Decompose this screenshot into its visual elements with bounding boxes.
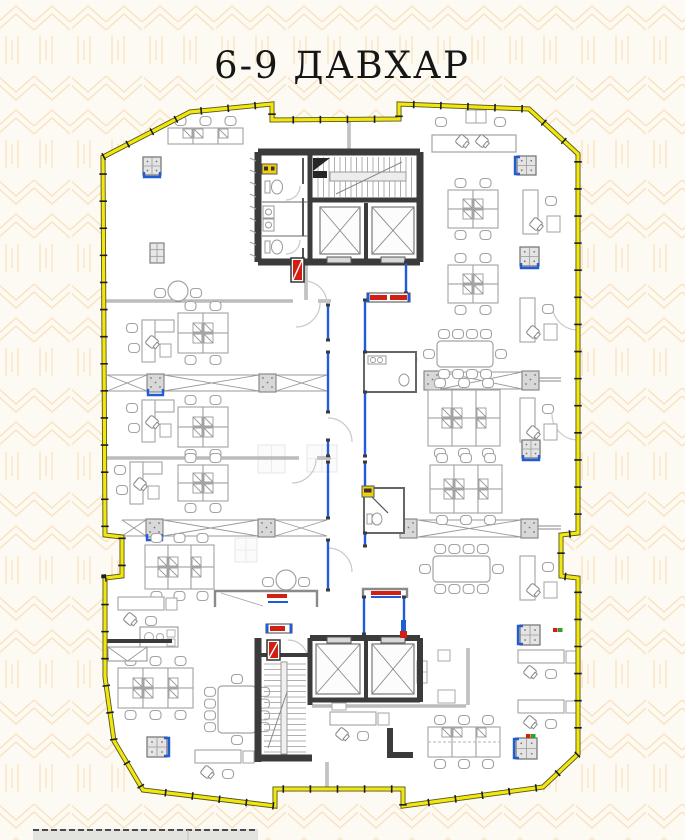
fire-hose-cabinet: [291, 258, 304, 282]
reception-counter: [363, 589, 407, 598]
wc-room: [364, 352, 416, 392]
desk-pod: [428, 379, 500, 458]
desk-pod: [118, 657, 193, 720]
bench: [367, 293, 410, 302]
elevator-shaft: [372, 207, 414, 254]
side-table: [438, 690, 455, 703]
fire-hose-cabinet: [267, 640, 280, 660]
desk-pod: [428, 716, 500, 769]
copier: [150, 243, 164, 263]
printer-desk: [108, 647, 147, 661]
exit-sign-badge: [362, 486, 374, 497]
floor-title: 6-9 ДАВХАР: [214, 44, 470, 87]
desk-pod: [168, 117, 243, 145]
storage-cabinet: [518, 625, 540, 645]
exit-sign-badge: [262, 164, 277, 174]
kitchen-counter: [140, 627, 178, 647]
storage-cabinet: [143, 157, 161, 177]
floor-plan-scene: 6-9 ДАВХАР: [0, 0, 685, 840]
side-table: [332, 703, 346, 710]
cropped-table-strip: [33, 829, 258, 840]
ghost-table: [235, 538, 257, 562]
side-table: [438, 650, 450, 661]
reception-counter: [215, 591, 317, 607]
elevator-shaft: [316, 644, 360, 694]
elevator-shaft: [372, 644, 414, 694]
storage-cabinet: [514, 738, 537, 759]
bench: [266, 624, 292, 633]
storage-cabinet: [515, 156, 536, 175]
elevator-shaft: [320, 207, 360, 254]
storage-cabinet: [147, 737, 169, 757]
storage-cabinet: [520, 247, 539, 268]
storage-cabinet: [522, 440, 540, 460]
